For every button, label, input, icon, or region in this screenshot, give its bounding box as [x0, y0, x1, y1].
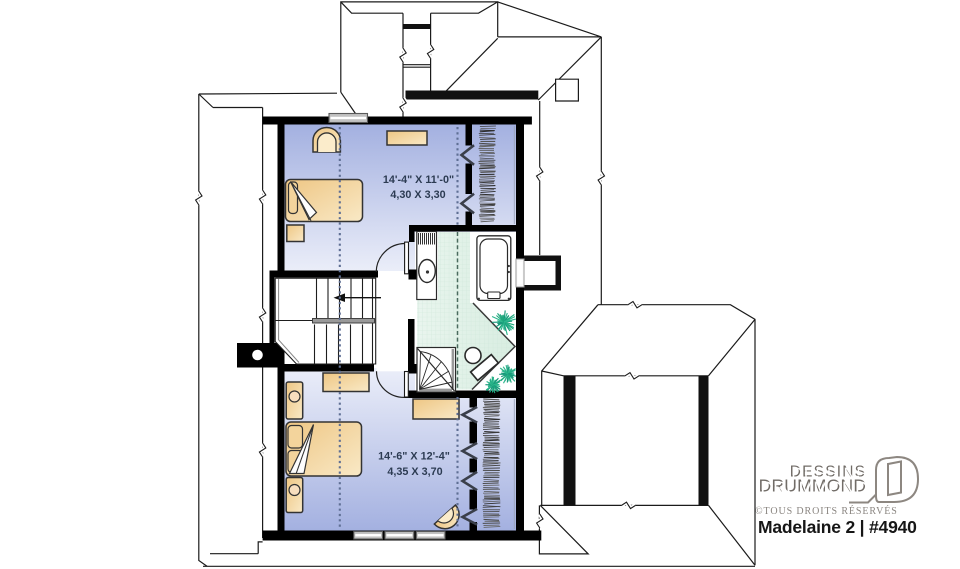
svg-text:DRUMMOND: DRUMMOND	[760, 478, 868, 498]
svg-text:14'-4" X 11'-0": 14'-4" X 11'-0"	[383, 174, 454, 186]
svg-text:Madelaine 2 | #4940: Madelaine 2 | #4940	[758, 517, 917, 537]
svg-text:4,30 X 3,30: 4,30 X 3,30	[390, 189, 445, 201]
svg-text:©TOUS DROITS RÉSERVÉS: ©TOUS DROITS RÉSERVÉS	[755, 505, 898, 517]
svg-text:14'-6" X 12'-4": 14'-6" X 12'-4"	[378, 451, 450, 463]
svg-text:4,35 X 3,70: 4,35 X 3,70	[387, 466, 442, 478]
